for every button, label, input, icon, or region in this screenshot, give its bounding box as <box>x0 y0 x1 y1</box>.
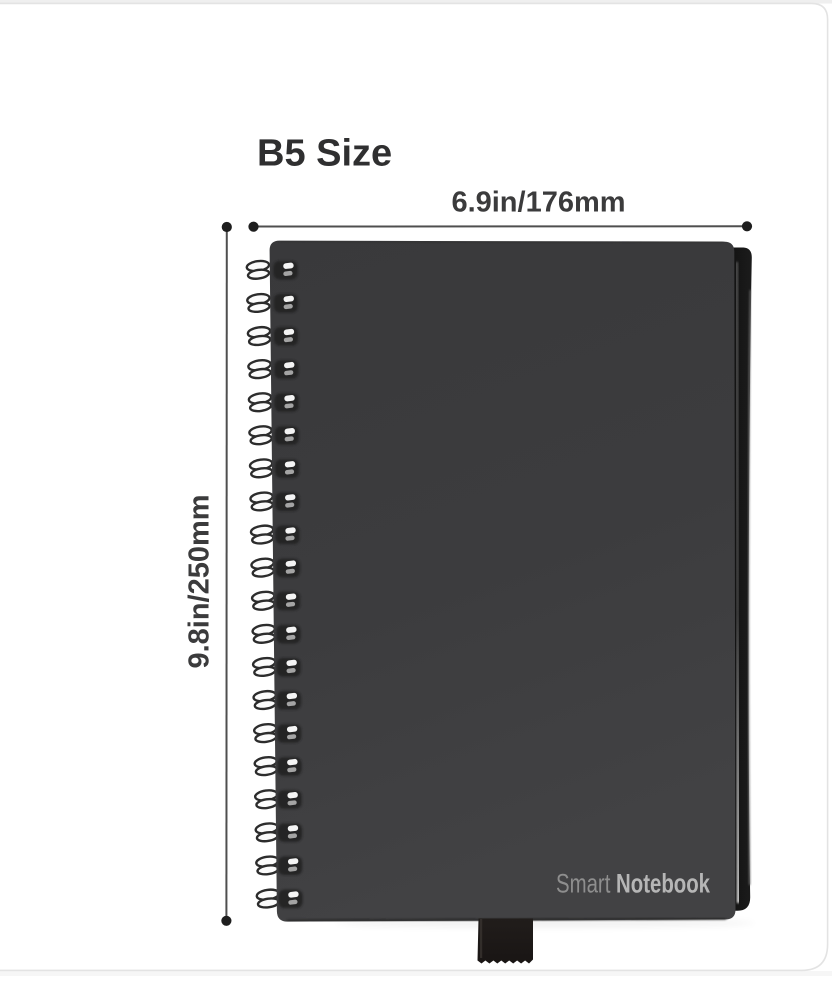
svg-text:9.8in/250mm: 9.8in/250mm <box>184 494 216 668</box>
svg-text:6.9in/176mm: 6.9in/176mm <box>451 187 625 219</box>
svg-text:Smart Notebook: Smart Notebook <box>556 870 711 899</box>
svg-text:B5 Size: B5 Size <box>257 133 392 175</box>
